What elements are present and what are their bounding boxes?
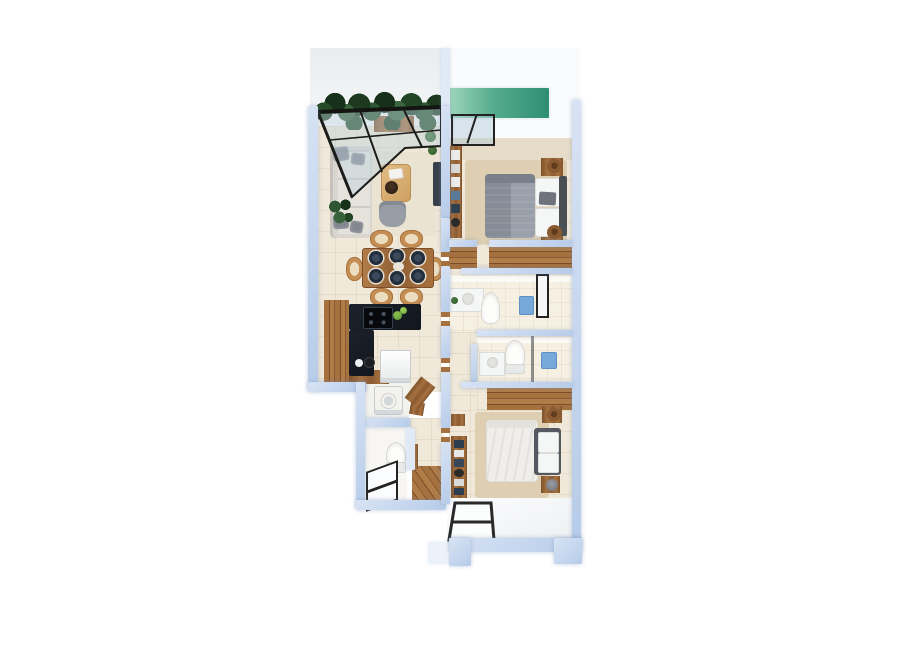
wall-spine-2: [441, 266, 450, 312]
main-bed-fold: [485, 174, 535, 183]
book: [454, 479, 464, 486]
bathroom2-shower-fixture: [541, 352, 557, 369]
book: [454, 459, 464, 467]
bed2-cushion-1: [538, 432, 559, 453]
bathroom2-glass-panel: [531, 336, 534, 382]
door-jamb-6: [441, 367, 450, 372]
plate-5: [390, 271, 404, 285]
shelf-object: [451, 218, 460, 227]
book: [454, 488, 464, 495]
wall-left-outer: [308, 106, 318, 390]
dishwasher: [380, 350, 411, 383]
bathroom1-back-wall: [449, 276, 572, 282]
kitchen-counter-return: [349, 330, 374, 376]
wall-guestbath-corridor: [406, 428, 415, 470]
wall-spine-5: [441, 442, 450, 504]
cup: [355, 359, 363, 367]
door-jamb-5: [441, 358, 450, 363]
door-jamb-1: [441, 252, 450, 257]
wall-bedroom-bottom-left: [449, 240, 477, 247]
bedroom2-bookshelf: [451, 436, 467, 498]
wall-corridor-bath2: [471, 344, 477, 382]
straw-hat-1: [547, 159, 562, 174]
book: [454, 440, 464, 448]
door-jamb-7: [441, 428, 450, 433]
plate-1: [369, 251, 383, 265]
wall-laundry-bath: [365, 418, 410, 427]
door-jamb-2: [441, 261, 450, 266]
wall-left-lower: [356, 382, 365, 508]
bathroom1-toilet: [481, 292, 500, 324]
wall-stub-faint: [428, 542, 446, 564]
wall-terrace-pool-divider: [441, 48, 450, 108]
main-bed-accent-pillow: [539, 192, 557, 206]
bed2-cushion-2: [538, 453, 559, 473]
bed2-duvet: [486, 420, 538, 482]
bathroom1-plant: [451, 297, 458, 304]
wall-right-outer: [572, 100, 581, 540]
wardrobe-right: [489, 247, 572, 269]
door-jamb-3: [441, 312, 450, 317]
wardrobe-left: [449, 247, 477, 269]
wall-guestbath-bottom: [356, 500, 446, 510]
wall-bottom-stub-right: [554, 538, 582, 564]
dining-chair-top-1: [370, 230, 393, 248]
wall-bath1-bath2: [477, 330, 572, 336]
kitchen-cabinets-left: [324, 300, 349, 384]
door-jamb-8: [441, 437, 450, 442]
door-jamb-4: [441, 321, 450, 326]
bed2-fold: [486, 420, 536, 428]
wall-spine-3: [441, 326, 450, 358]
glass-pergola: [306, 100, 476, 204]
floor-plan-canvas: [0, 0, 900, 650]
wall-closet-bath1: [461, 268, 572, 274]
table-centerpiece: [393, 262, 404, 271]
main-bed-duvet: [485, 174, 535, 238]
bathroom2-toilet-tank: [505, 364, 525, 374]
cooktop: [363, 307, 393, 329]
straw-hat-2: [547, 225, 562, 240]
shelf-object: [454, 469, 464, 477]
round-object: [546, 479, 558, 491]
kettle: [365, 358, 374, 367]
bathroom2-sink: [487, 357, 498, 368]
wall-bedroom-bottom-right: [489, 240, 572, 247]
bathroom1-shower-door: [536, 274, 549, 318]
plate-4: [369, 269, 383, 283]
armchair: [379, 201, 406, 227]
bedroom2-shelf-top: [451, 414, 465, 426]
dining-chair-top-2: [400, 230, 423, 248]
bathroom1-shower-fixture: [519, 296, 534, 315]
shower-tray-divider: [368, 480, 396, 493]
wall-spine-4: [441, 372, 450, 428]
wood-floor-passage: [412, 466, 443, 502]
dining-chair-left: [346, 257, 363, 281]
washing-machine: [374, 386, 403, 415]
plate-6: [411, 269, 425, 283]
straw-hat-3: [547, 408, 561, 422]
book: [454, 450, 464, 457]
lime: [400, 307, 407, 314]
plate-2: [390, 249, 404, 263]
wall-spine-1: [441, 218, 450, 252]
plate-3: [411, 251, 425, 265]
bathroom2-back-wall: [477, 338, 572, 343]
wall-bottom-stub-left: [449, 538, 471, 566]
bathroom1-sink: [462, 293, 474, 305]
book: [451, 204, 460, 213]
wall-living-bedroom-divider: [441, 106, 450, 218]
wall-bath2-closet2: [461, 382, 572, 388]
